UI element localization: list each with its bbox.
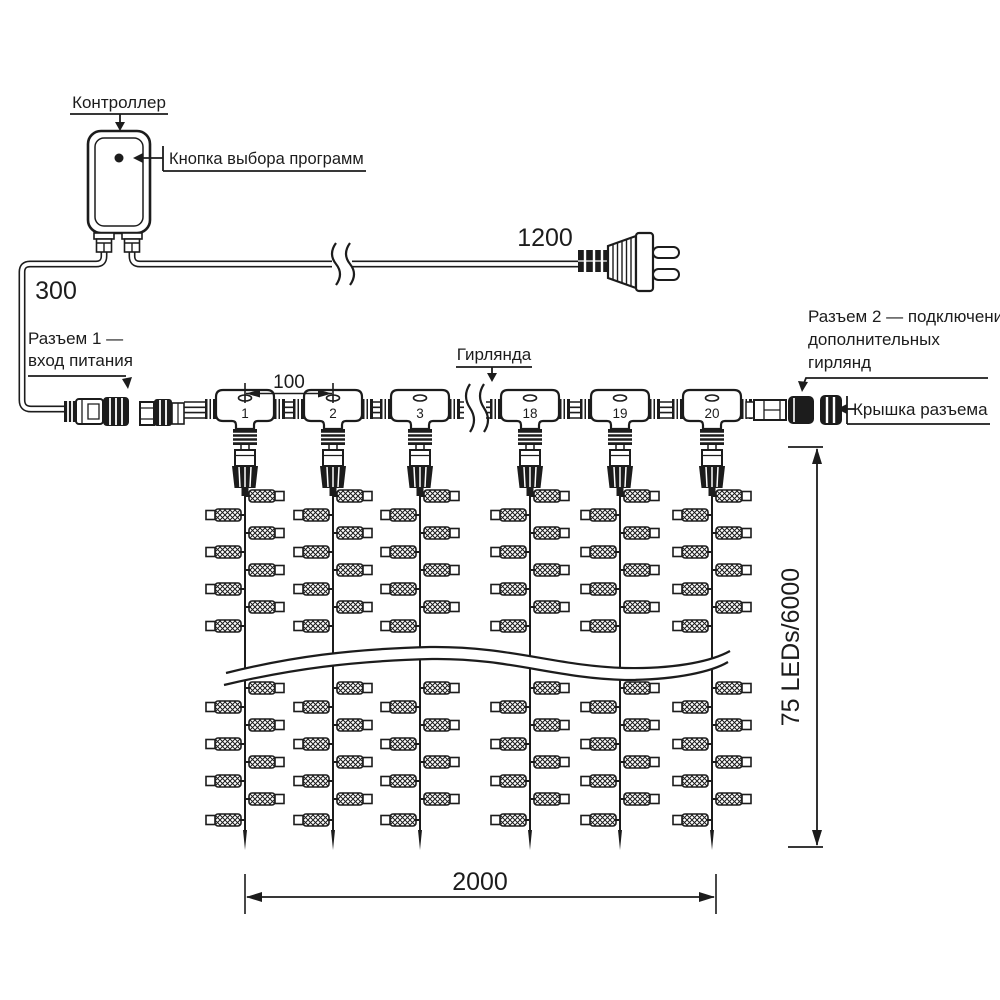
cord-length-label: 1200: [517, 224, 573, 252]
arrow-down-icon: [487, 373, 497, 382]
curtain-string: [380, 390, 460, 850]
curtain-string: [205, 390, 285, 850]
controller-gland-right: [122, 233, 142, 252]
drop-number: 2: [329, 406, 337, 421]
width-dim-label: 2000: [452, 868, 508, 896]
dimension-width: 2000: [245, 868, 716, 914]
connector1-label-line1: Разъем 1 —: [28, 329, 123, 348]
arrow-up-icon: [812, 448, 822, 464]
drop-number: 19: [612, 406, 627, 421]
program-button-dot: [115, 154, 124, 163]
connector-1: [64, 397, 184, 426]
garland-callout: Гирлянда: [456, 345, 532, 382]
curtain-band: [224, 647, 730, 685]
connector2-label-line2: дополнительных: [808, 330, 940, 349]
plug-prong: [653, 247, 679, 258]
controller-label: Контроллер: [72, 93, 166, 112]
arrow-down-icon: [812, 830, 822, 846]
drop-number: 20: [704, 406, 719, 421]
cap-label: Крышка разъема: [853, 400, 988, 419]
cable-break-icon: [332, 243, 354, 285]
diagram-canvas: 1 2 3 18 19 20 Контроллер Кнопка выбора …: [0, 0, 1000, 1000]
connector2-callout: Разъем 2 — подключение дополнительных ги…: [798, 307, 1000, 392]
garland-label: Гирлянда: [457, 345, 532, 364]
connector2-label-line1: Разъем 2 — подключение: [808, 307, 1000, 326]
drop-number: 1: [241, 406, 249, 421]
drop-number: 18: [522, 406, 537, 421]
power-plug: [578, 233, 679, 291]
garland-break-icon: [466, 384, 488, 432]
controller-callout: Контроллер: [70, 93, 168, 131]
drop-number: 3: [416, 406, 424, 421]
height-dim-label: 75 LEDs/6000: [777, 568, 805, 726]
controller-gland-left: [94, 233, 114, 252]
program-button-label: Кнопка выбора программ: [169, 150, 364, 168]
plug-prong: [653, 269, 679, 280]
curtain-string: [672, 390, 752, 850]
curtain-string: [580, 390, 660, 850]
diagram-page: 1 2 3 18 19 20 Контроллер Кнопка выбора …: [0, 0, 1000, 1000]
arrow-right-icon: [699, 892, 715, 902]
arrow-down-icon: [115, 122, 125, 131]
connector1-label-line2: вход питания: [28, 351, 133, 370]
program-button-callout: Кнопка выбора программ: [133, 146, 366, 171]
drop-spacing-label: 100: [273, 372, 305, 393]
arrow-down-icon: [798, 381, 808, 392]
power-cord: [132, 243, 578, 285]
curtain-string: [490, 390, 570, 850]
connector2-label-line3: гирлянд: [808, 353, 871, 372]
cap-callout: Крышка разъема: [837, 396, 990, 424]
curtain-string: [293, 390, 373, 850]
connector-2: [746, 396, 814, 424]
arrow-down-icon: [122, 377, 132, 389]
arrow-left-icon: [246, 892, 262, 902]
connector1-callout: Разъем 1 — вход питания: [28, 329, 133, 389]
connector-cap: [820, 395, 842, 425]
lead-length-label: 300: [35, 277, 77, 305]
controller: [88, 131, 150, 252]
dimension-height: 75 LEDs/6000: [777, 447, 823, 847]
